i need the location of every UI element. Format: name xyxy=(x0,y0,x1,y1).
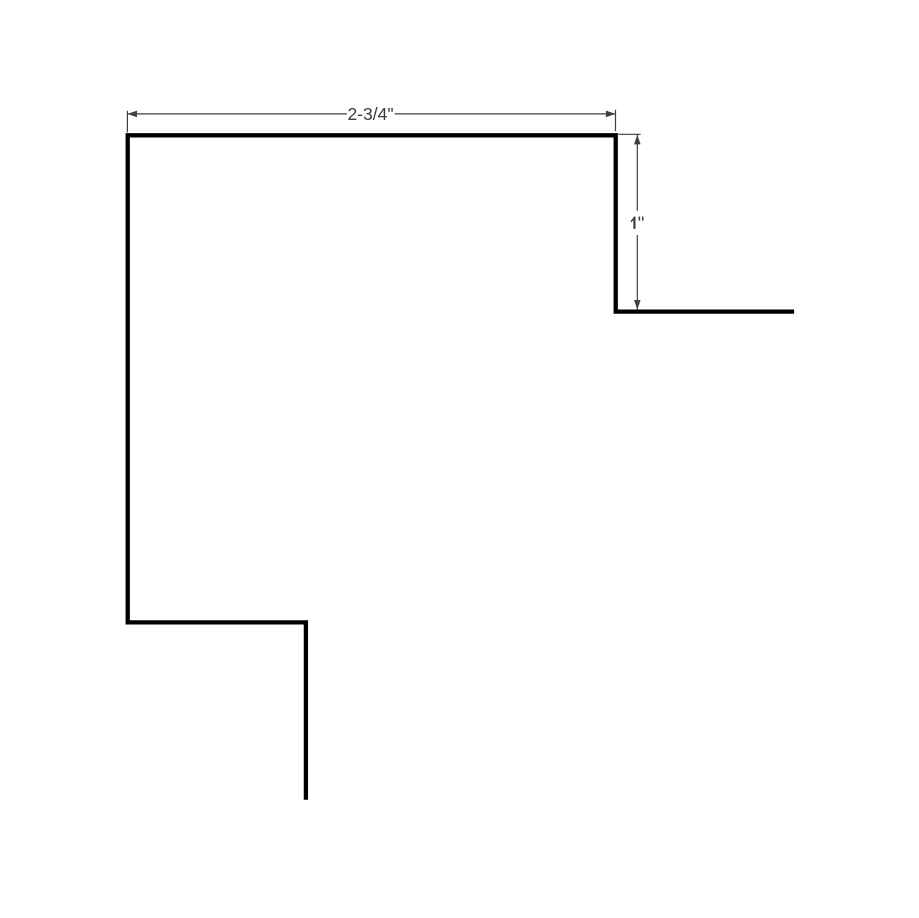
svg-text:2-3/4": 2-3/4" xyxy=(347,104,393,124)
